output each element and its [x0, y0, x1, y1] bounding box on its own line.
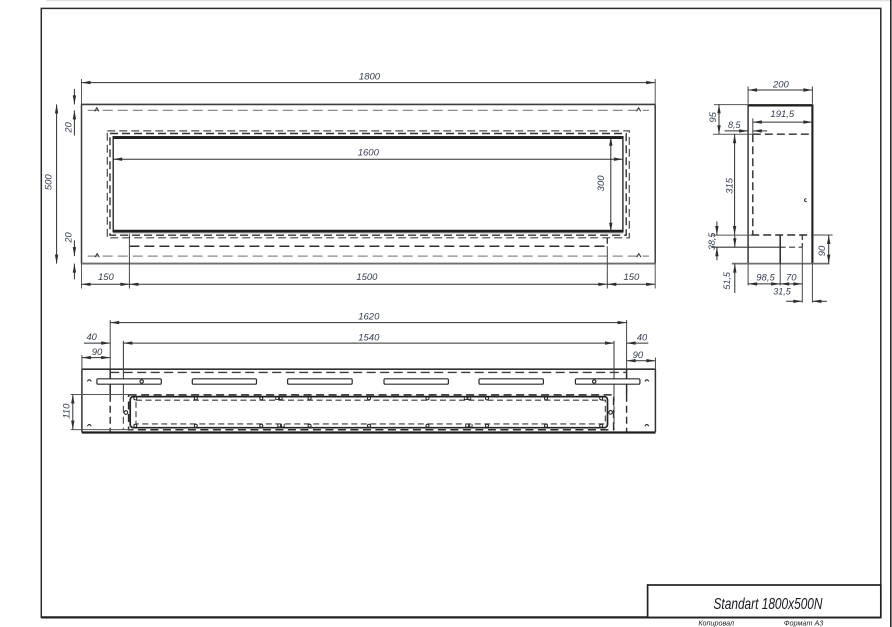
svg-text:Копировал: Копировал [698, 618, 734, 627]
svg-text:Standart 1800x500N: Standart 1800x500N [714, 596, 823, 613]
svg-text:40: 40 [87, 332, 98, 342]
svg-text:90: 90 [817, 245, 828, 256]
svg-text:38,5: 38,5 [707, 232, 717, 251]
svg-text:20: 20 [63, 121, 73, 133]
svg-text:191,5: 191,5 [770, 109, 794, 120]
svg-text:95: 95 [708, 111, 719, 122]
svg-text:200: 200 [772, 79, 790, 90]
svg-text:20: 20 [64, 232, 74, 244]
svg-text:1540: 1540 [358, 332, 380, 343]
svg-text:1800: 1800 [359, 71, 381, 82]
svg-text:315: 315 [725, 177, 736, 194]
svg-text:90: 90 [633, 350, 644, 361]
svg-text:1600: 1600 [358, 147, 380, 158]
svg-text:90: 90 [92, 347, 103, 358]
svg-text:31,5: 31,5 [773, 286, 792, 296]
svg-text:500: 500 [44, 174, 55, 191]
svg-text:300: 300 [596, 175, 607, 192]
svg-text:110: 110 [62, 403, 73, 419]
svg-text:8,5: 8,5 [728, 120, 742, 130]
svg-text:150: 150 [98, 272, 115, 283]
svg-text:40: 40 [637, 332, 648, 342]
svg-text:1500: 1500 [356, 272, 378, 283]
svg-text:98,5: 98,5 [756, 273, 775, 284]
svg-text:150: 150 [623, 272, 640, 283]
svg-text:1620: 1620 [358, 312, 380, 323]
svg-text:51,5: 51,5 [722, 271, 732, 290]
svg-text:70: 70 [786, 273, 797, 284]
svg-text:Формат А3: Формат А3 [784, 618, 823, 627]
